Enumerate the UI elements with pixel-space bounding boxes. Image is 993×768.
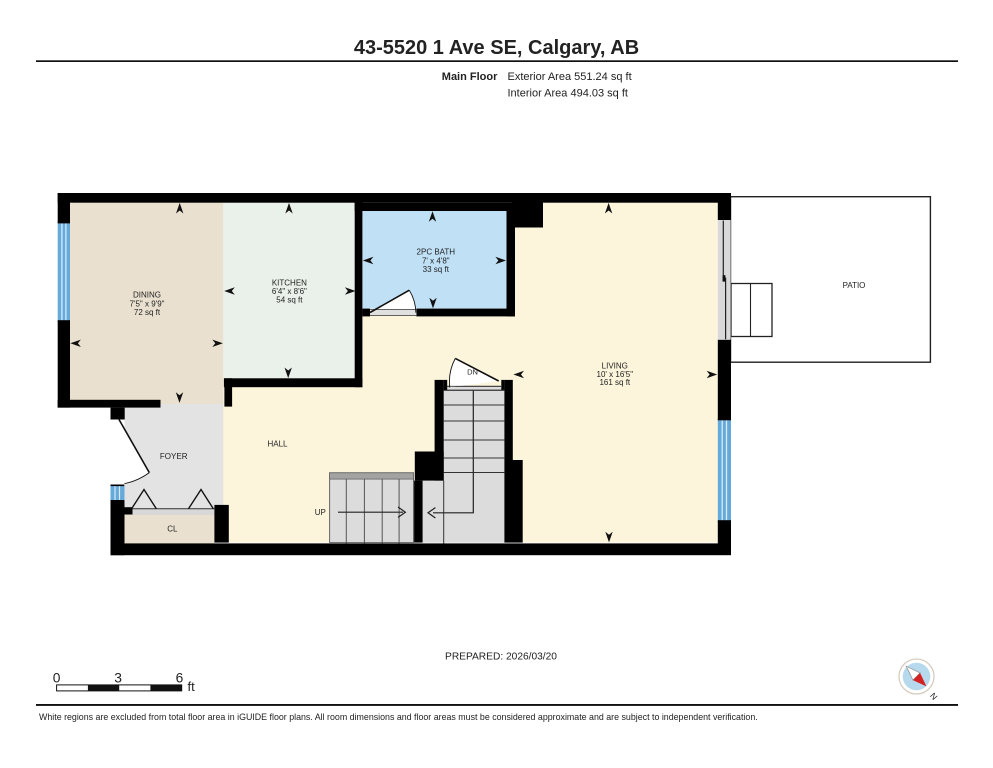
svg-text:UP: UP: [315, 508, 326, 517]
svg-text:43-5520 1 Ave SE, Calgary, AB: 43-5520 1 Ave SE, Calgary, AB: [354, 37, 639, 59]
svg-text:161 sq ft: 161 sq ft: [599, 378, 630, 387]
svg-text:6: 6: [176, 671, 184, 686]
svg-text:33 sq ft: 33 sq ft: [423, 265, 450, 274]
svg-text:DN: DN: [467, 367, 478, 376]
svg-text:White regions are excluded fro: White regions are excluded from total fl…: [39, 712, 758, 722]
svg-text:FOYER: FOYER: [160, 452, 188, 461]
svg-text:Exterior Area 551.24 sq ft: Exterior Area 551.24 sq ft: [508, 71, 632, 83]
svg-text:HALL: HALL: [267, 439, 288, 448]
svg-text:ft: ft: [188, 679, 196, 694]
svg-text:3: 3: [114, 671, 122, 686]
svg-text:DINING: DINING: [133, 291, 161, 300]
svg-text:CL: CL: [167, 524, 178, 533]
svg-text:PREPARED: 2026/03/20: PREPARED: 2026/03/20: [445, 652, 557, 663]
svg-text:54 sq ft: 54 sq ft: [276, 296, 303, 305]
svg-text:72 sq ft: 72 sq ft: [134, 308, 161, 317]
svg-text:2PC BATH: 2PC BATH: [417, 248, 456, 257]
svg-text:Interior Area 494.03 sq ft: Interior Area 494.03 sq ft: [508, 87, 628, 99]
svg-text:Main Floor: Main Floor: [442, 71, 498, 83]
svg-text:PATIO: PATIO: [843, 281, 866, 290]
svg-text:0: 0: [53, 671, 61, 686]
